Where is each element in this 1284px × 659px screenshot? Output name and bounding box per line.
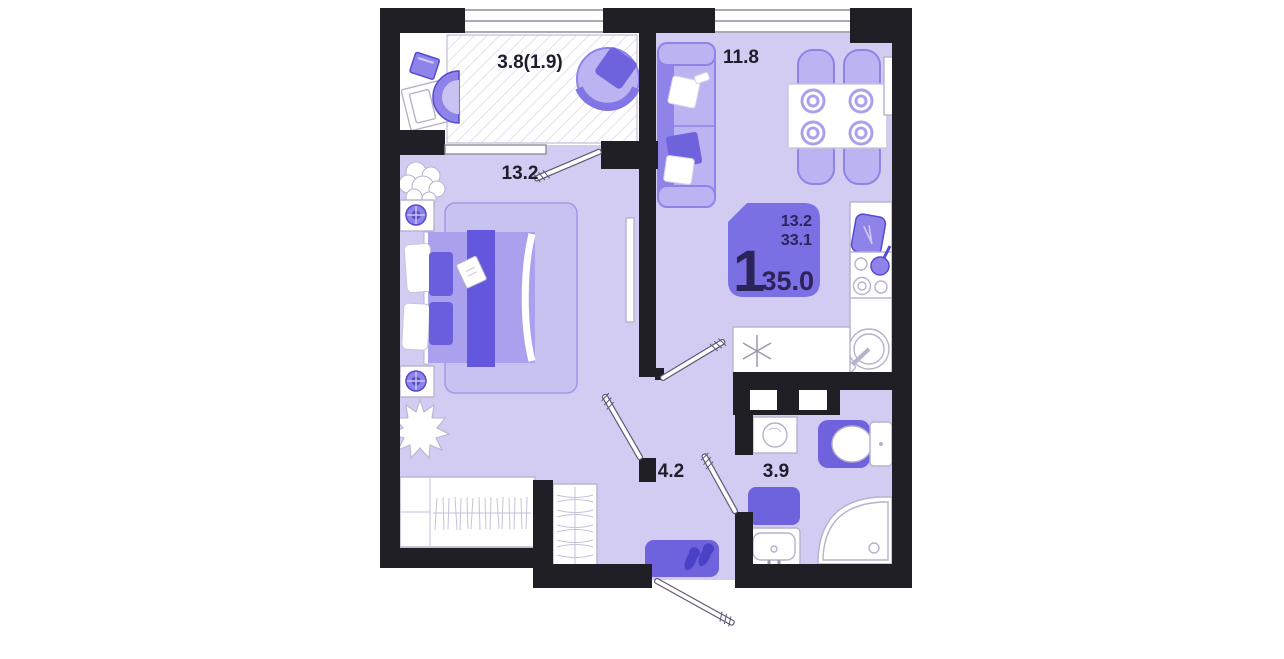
radiator-bedroom <box>626 218 634 322</box>
cutting-board <box>850 213 886 256</box>
bathroom-sink <box>748 528 800 568</box>
washing-machine <box>753 417 797 453</box>
entry-mat-shoes <box>645 540 719 577</box>
toilet <box>818 420 892 468</box>
vent-shaft <box>799 390 827 410</box>
bath-mat <box>748 487 800 525</box>
entry-door <box>653 576 737 628</box>
badge-area-without-balcony: 33.1 <box>781 232 812 249</box>
nightstand-top <box>400 200 434 231</box>
area-badge: 1 13.2 33.1 35.0 <box>728 203 820 304</box>
bedroom-area-label: 13.2 <box>502 163 539 184</box>
nightstand-bottom <box>400 366 434 397</box>
kitchen-living-area-label: 11.8 <box>723 47 759 68</box>
kitchen-counter-bottom <box>733 327 850 375</box>
badge-total-area: 35.0 <box>761 266 814 296</box>
stove <box>850 246 892 298</box>
apartment-floorplan: 1 13.2 33.1 35.0 <box>0 0 1284 659</box>
bedroom-wardrobe <box>400 477 535 547</box>
balcony-area-label: 3.8(1.9) <box>497 52 562 73</box>
balcony-window <box>465 9 603 33</box>
floorplan-page: 1 13.2 33.1 35.0 <box>0 0 1284 659</box>
radiator-kitchen <box>884 57 893 115</box>
balcony-partition-window <box>445 145 546 154</box>
sofa <box>658 43 715 207</box>
badge-rooms-count: 1 <box>733 239 765 304</box>
bathroom-area-label: 3.9 <box>763 461 789 482</box>
vent-shaft <box>750 390 777 410</box>
hall-wardrobe <box>553 484 597 568</box>
hallway-area-label: 4.2 <box>658 461 684 482</box>
badge-living-area: 13.2 <box>781 213 812 230</box>
double-bed <box>402 203 577 393</box>
kitchen-window <box>715 9 850 33</box>
